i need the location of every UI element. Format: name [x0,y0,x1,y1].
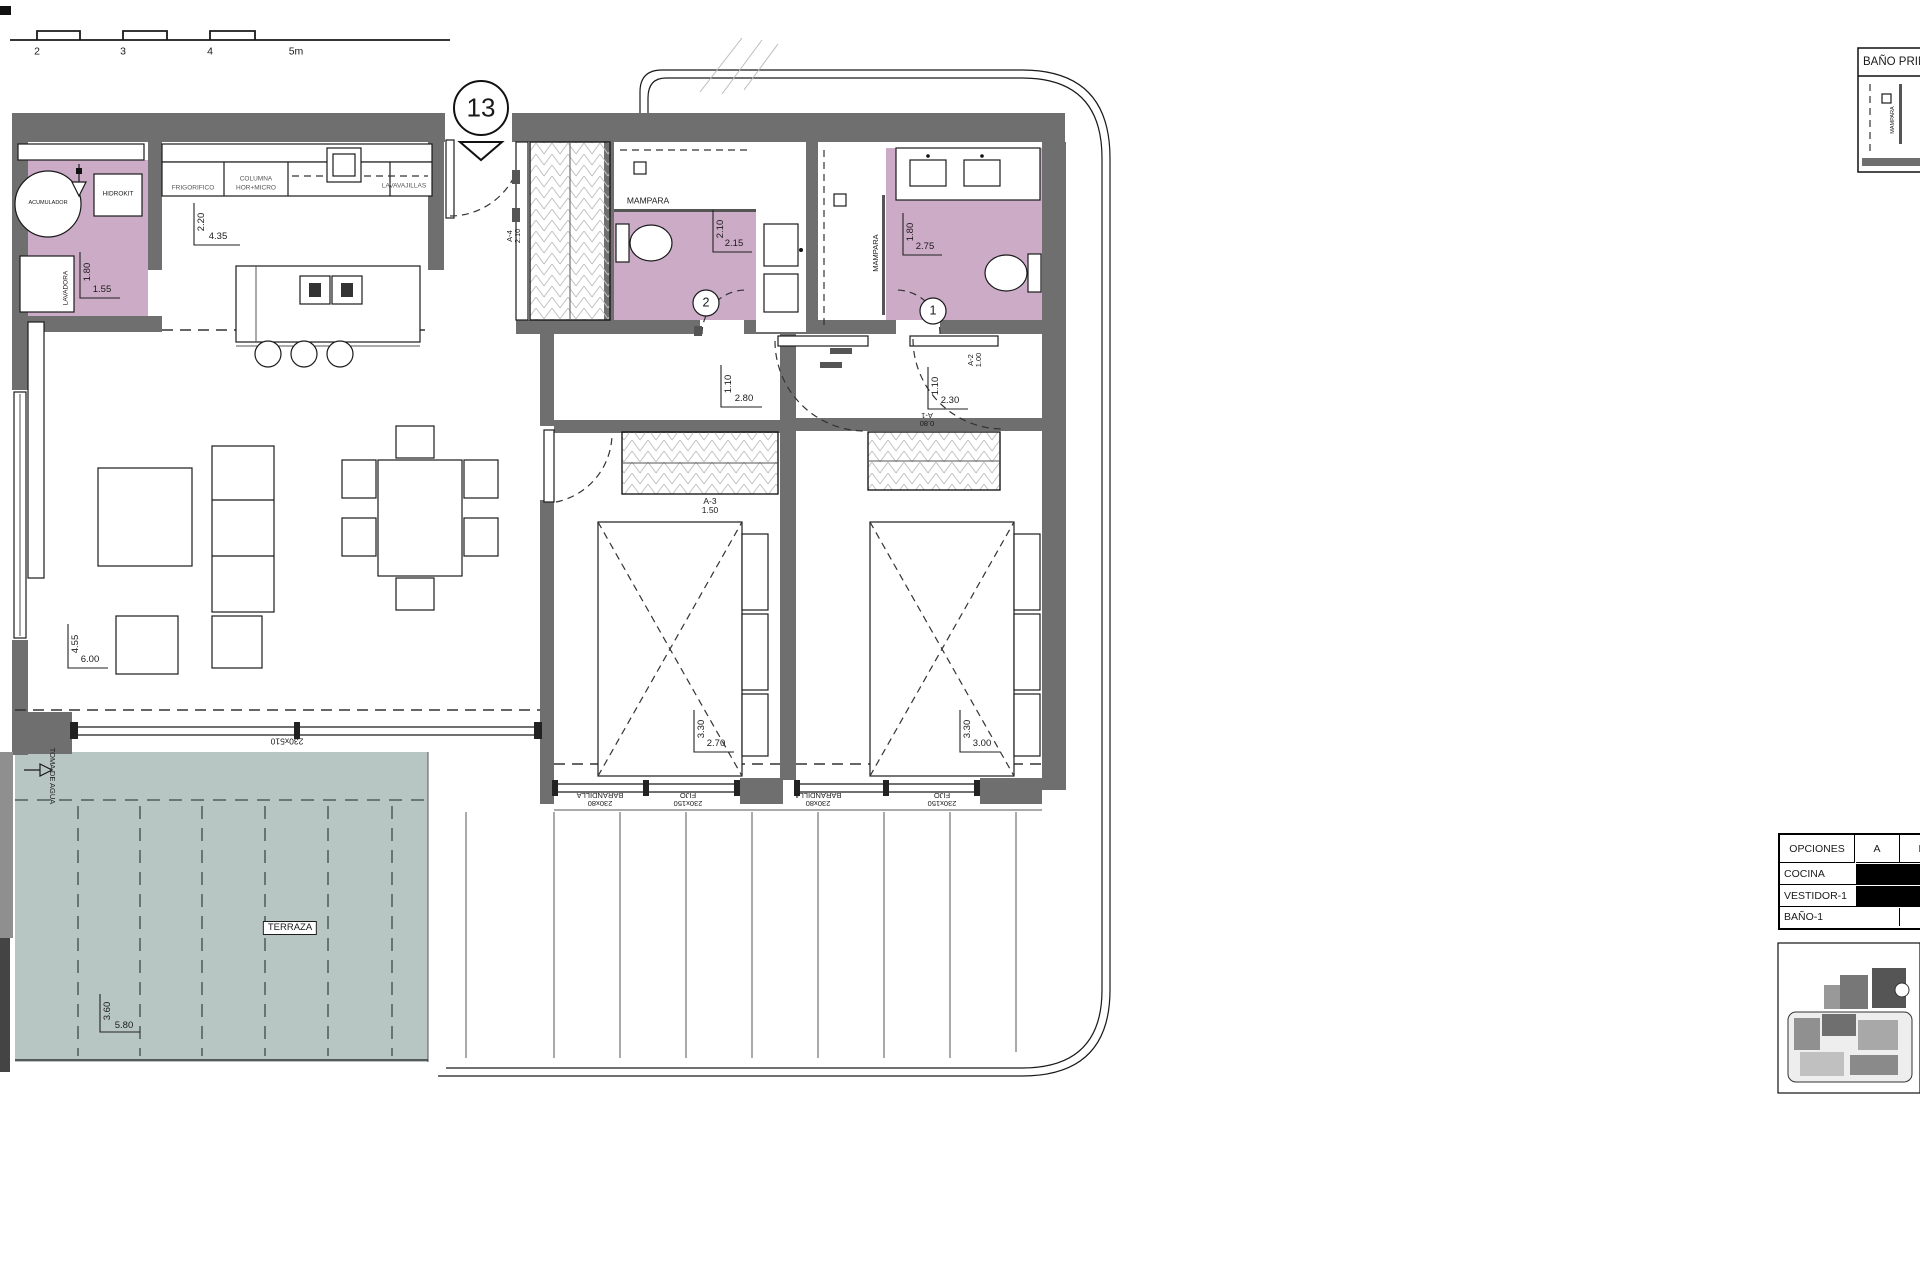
options-row-vestidor1: VESTIDOR-1 [1780,886,1859,908]
terrace-window-label: 230x510 [271,737,304,746]
bath1-mampara-label: MAMPARA [872,234,880,271]
bedroom2-dim-v: 3.30 [697,720,707,739]
terrace-label: TERRAZA [263,921,317,935]
bath2-fill [614,212,756,332]
scale-bar [0,6,450,40]
detail-box-title: BAÑO PRIN [1863,56,1920,68]
options-row-vestidor1-label: VESTIDOR-1 [1784,890,1847,902]
bath2-dim-h: 2.15 [725,239,744,249]
options-row-bano1-label: BAÑO-1 [1784,911,1823,923]
hall-doors [775,336,1003,431]
options-row-cocina-cells [1856,864,1920,886]
options-table: OPCIONES A B COCINA VESTIDOR-1 BAÑO-1 [1778,833,1920,930]
terrace-fill [15,752,428,1062]
key-plan-graphic [1778,943,1920,1093]
hall-dim-h: 2.80 [735,394,754,404]
door-a4-label: A-4 2.10 [506,229,522,244]
columna-label-1: COLUMNA [240,177,273,184]
options-row-cocina-label: COCINA [1784,868,1825,880]
bath1-dim-h: 2.75 [916,242,935,252]
living-dim-v: 4.55 [71,635,81,654]
hall-dim-v: 1.10 [724,375,734,394]
acumulador-label: ACUMULADOR [28,201,67,207]
bath1-number: 1 [930,304,937,317]
hidrokit-label: HIDROKIT [102,192,133,199]
bedroom1-window1-label: 230x80 BARANDILLA [795,791,842,807]
scale-tick-4: 4 [207,46,213,57]
scale-tick-5m: 5m [289,46,304,57]
frigorifico-label: FRIGORIFICO [172,186,215,193]
bath1-dim-v: 1.80 [906,223,916,242]
options-col-a: A [1856,835,1900,863]
bath2-dim-v: 2.10 [716,220,726,239]
options-row-cocina: COCINA [1780,864,1859,886]
bedroom1-furniture [868,432,1040,776]
kitchen-dim-v: 2.20 [197,213,207,232]
options-col-b: B [1900,835,1920,863]
options-header-label: OPCIONES [1789,843,1844,855]
bedroom2-furniture [544,430,778,776]
floor-plan-drawing [0,0,1920,1280]
bedroom2-window2-label: 230x150 FIJO [674,791,703,807]
options-row-vestidor1-cells [1856,886,1920,908]
door-a2-label: A-2 1.00 [967,353,983,368]
hall2-dim-v: 1.10 [931,377,941,396]
options-col-a-label: A [1873,843,1880,855]
lavadora-label: LAVADORA [64,271,71,305]
laundry-dim-v: 1.80 [83,263,93,282]
kitchen-dim-h: 4.35 [209,232,228,242]
scale-tick-2: 2 [34,46,40,57]
options-row-bano1: BAÑO-1 [1780,908,1859,927]
door-a1-label: 0.80 A-1 [920,411,935,427]
bedroom1-dim-v: 3.30 [963,720,973,739]
options-row-bano1-cell-b [1900,908,1920,927]
detail-box-mampara-label: MAMPARA [1891,106,1897,133]
bedroom1-dim-h: 3.00 [973,739,992,749]
terrace-dim-v: 3.60 [103,1002,113,1021]
scale-tick-3: 3 [120,46,126,57]
terrace-dim-h: 5.80 [115,1021,134,1031]
columna-label-2: HOR+MICRO [236,186,276,193]
closet-a4 [512,142,610,320]
living-furniture [28,322,498,674]
lavavajillas-label: LAVAVAJILLAS [382,184,426,191]
toma-de-agua-label: TOMA DE AGUA [48,748,56,805]
bath2-number: 2 [703,296,710,309]
options-row-bano1-cell-a [1856,908,1900,927]
laundry-dim-h: 1.55 [93,285,112,295]
unit-number: 13 [467,94,496,121]
wardrobe-a3-label: A-3 1.50 [702,497,719,515]
bedroom2-dim-h: 2.70 [707,739,726,749]
floor-plan-sheet: 2 3 4 5m 13 ACUMULADOR HIDROKIT LAVADORA… [0,0,1920,1280]
bath2-mampara-label: MAMPARA [627,197,669,206]
options-table-header: OPCIONES [1780,835,1855,863]
bedroom2-window1-label: 230x80 BARANDILLA [577,791,624,807]
living-dim-h: 6.00 [81,655,100,665]
hall2-dim-h: 2.30 [941,396,960,406]
bedroom1-window2-label: 230x150 FIJO [928,791,957,807]
